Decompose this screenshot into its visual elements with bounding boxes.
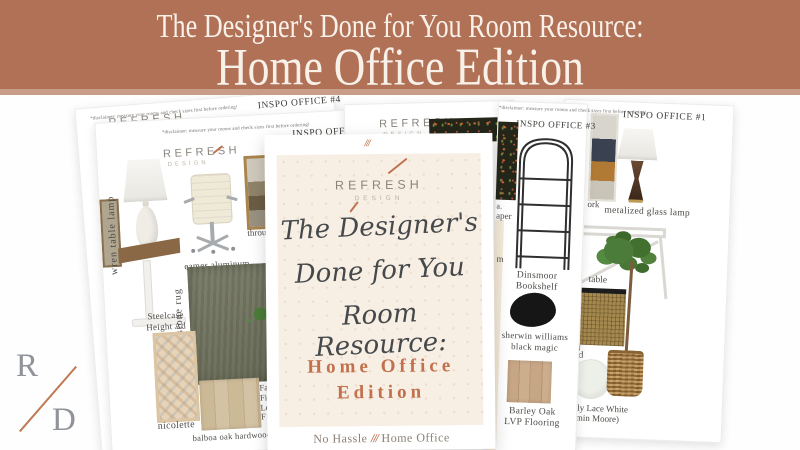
item-label-table-cut: table [588,275,607,287]
item-label-wallpaper-cut: a. aper [496,202,512,222]
chair-wheel [211,250,215,254]
tagline-right: Home Office [381,430,449,445]
glass-lamp-foot [629,199,643,203]
board-title: INSPO OFFICE #3 [516,118,596,131]
item-label-nicolette: nicolette [151,419,202,434]
item-label-barley: Barley Oak LVP Flooring [490,405,575,431]
refresh-logo-sub: DESIGN [168,160,209,168]
chair-column [210,222,215,242]
cover-page: /// REFRESH DESIGN The Designer's Done f… [264,133,495,450]
arched-bookshelf [511,132,578,270]
woven-basket [606,350,644,397]
item-label-dinsmoor: Dinsmoor Bookshelf [496,270,577,296]
cover-card: REFRESH DESIGN The Designer's Done for Y… [277,153,484,427]
banner-bottom-strip [0,89,800,95]
flooring-swatch-balboa [199,378,262,431]
glass-lamp-base [626,160,648,201]
item-label-sherwin: sherwin williams black magic [490,329,579,354]
chair-wheel [231,247,235,251]
chair-wheel [191,249,195,253]
item-label-cut: m [496,254,503,265]
rug-swatch-nicolette [152,331,200,423]
promo-graphic: *disclaimer: measure your rooms and chec… [0,0,800,450]
accent-slash [349,201,358,212]
title-banner: The Designer's Done for You Room Resourc… [0,0,800,95]
accent-slash [388,158,408,174]
item-label-paint-cut: tilly Lace White jamin Moore) [569,402,628,425]
cover-tagline: No Hassle /// Home Office [267,430,495,447]
table-lamp-shade [121,158,167,202]
refresh-logo-sub: DESIGN [277,194,481,203]
cover-edition-line2: Edition [279,381,483,405]
glass-lamp-shade [617,128,658,161]
rd-monogram: R D [0,340,110,450]
paint-blob-black-magic [509,291,557,328]
office-chair [180,172,242,259]
cover-script-line1: The Designer's [277,207,482,246]
disclaimer-text: *disclaimer: measure your rooms and chec… [162,123,310,136]
refresh-logo: REFRESH [277,177,481,193]
cover-edition-line1: Home Office [279,355,483,379]
item-label-metalized-lamp: metalized glass lamp [589,205,705,221]
accent-slashes: /// [364,138,369,149]
monogram-d: D [52,402,76,439]
monogram-r: R [16,348,38,385]
flooring-swatch-barley [507,360,552,404]
cover-script-line3: Room Resource: [277,295,484,364]
tagline-left: No Hassle [313,431,367,446]
cover-script-line2: Done for You [277,251,482,290]
chair-back [190,173,233,225]
tagline-slashes: /// [371,431,378,445]
refresh-logo: REFRESH [163,144,241,160]
moodboard-office-3: *disclaimer: measure your rooms and chec… [486,101,588,450]
